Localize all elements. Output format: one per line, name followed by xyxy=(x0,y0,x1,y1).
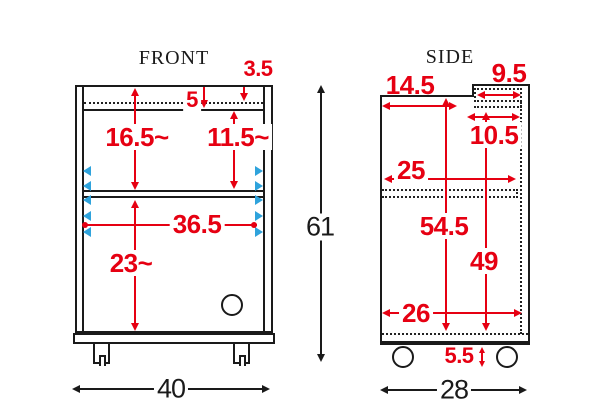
arrowhead-up xyxy=(442,98,450,106)
front-right-leg-notch xyxy=(239,355,246,366)
shelf-pin-triangle xyxy=(83,181,91,191)
cable-hole xyxy=(221,294,243,316)
dim-label-top-panel: 5 xyxy=(183,89,201,111)
side-shelf-hidden xyxy=(382,189,518,198)
arrowhead-right xyxy=(513,91,521,99)
shelf-pin-triangle xyxy=(83,227,91,237)
arrowhead-left xyxy=(477,91,485,99)
arrowhead-up xyxy=(230,111,238,119)
shelf-pin-triangle xyxy=(255,195,263,205)
dim-label-notch-depth: 9.5 xyxy=(492,60,527,86)
arrowhead-up xyxy=(317,85,325,93)
arrowhead-left xyxy=(382,309,390,317)
arrowhead-down xyxy=(230,181,238,189)
dim-label-bottom-depth: 26 xyxy=(399,300,433,326)
arrowhead-down xyxy=(442,323,450,331)
dim-label-back-top-depth: 10.5 xyxy=(467,122,522,148)
front-view-title: FRONT xyxy=(139,48,210,68)
arrowhead-down xyxy=(200,100,208,108)
dim-endpoint-dot xyxy=(82,222,88,228)
front-shelf-top-line xyxy=(84,190,263,192)
dim-label-overall-width: 40 xyxy=(154,376,188,403)
side-top-panel-hidden-line xyxy=(474,106,522,108)
front-shelf-bottom-line xyxy=(84,196,263,198)
arrowhead-up xyxy=(131,88,139,96)
dim-arrow-back-top-depth xyxy=(470,116,517,118)
arrowhead-down xyxy=(317,354,325,362)
dim-label-top-step: 3.5 xyxy=(243,58,272,80)
front-left-inner-wall xyxy=(82,85,84,333)
arrowhead-right xyxy=(262,385,270,393)
dim-label-back-interior-height: 49 xyxy=(467,248,501,274)
front-base-plinth xyxy=(73,333,275,344)
caster-wheel xyxy=(392,346,414,368)
side-back-edge xyxy=(528,84,530,345)
dim-label-overall-depth: 28 xyxy=(437,377,471,404)
arrowhead-up xyxy=(482,112,490,120)
dim-arrow-top-panel xyxy=(203,87,205,101)
shelf-pin-triangle xyxy=(255,181,263,191)
arrowhead-right xyxy=(508,175,516,183)
arrowhead-left xyxy=(72,385,80,393)
dim-label-overall-height: 61 xyxy=(303,214,337,241)
front-top-hidden-line xyxy=(84,102,263,104)
dim-label-interior-width: 36.5 xyxy=(170,211,225,237)
shelf-pin-triangle xyxy=(255,227,263,237)
arrowhead-down xyxy=(131,182,139,190)
arrowhead-down xyxy=(240,93,248,101)
side-front-edge xyxy=(380,95,382,345)
arrowhead-down xyxy=(479,361,485,367)
arrowhead-down xyxy=(131,323,139,331)
dimension-diagram: FRONT xyxy=(0,0,600,420)
caster-wheel xyxy=(496,346,518,368)
side-view-title: SIDE xyxy=(426,47,474,67)
dim-endpoint-dot xyxy=(251,222,257,228)
dim-label-interior-height: 54.5 xyxy=(417,213,472,239)
arrowhead-right xyxy=(449,102,457,110)
shelf-pin-triangle xyxy=(255,166,263,176)
arrowhead-down xyxy=(482,323,490,331)
dim-label-upper-right: 11.5~ xyxy=(204,124,272,150)
arrowhead-up xyxy=(131,200,139,208)
side-bottom-hidden-line xyxy=(382,333,528,335)
shelf-pin-triangle xyxy=(83,166,91,176)
shelf-pin-triangle xyxy=(83,211,91,221)
dim-label-middle-depth: 25 xyxy=(394,157,428,183)
dim-label-caster-height: 5.5 xyxy=(441,345,476,367)
dim-label-top-front-depth: 14.5 xyxy=(386,72,435,98)
arrowhead-left xyxy=(380,386,388,394)
arrowhead-left xyxy=(382,102,390,110)
front-left-leg-notch xyxy=(99,355,106,366)
arrowhead-right xyxy=(519,386,527,394)
shelf-pin-triangle xyxy=(83,195,91,205)
arrowhead-up xyxy=(479,347,485,353)
shelf-pin-triangle xyxy=(255,211,263,221)
dim-label-upper-left: 16.5~ xyxy=(102,124,171,150)
arrowhead-right xyxy=(514,309,522,317)
arrowhead-left xyxy=(384,175,392,183)
dim-label-lower-height: 23~ xyxy=(107,250,156,276)
